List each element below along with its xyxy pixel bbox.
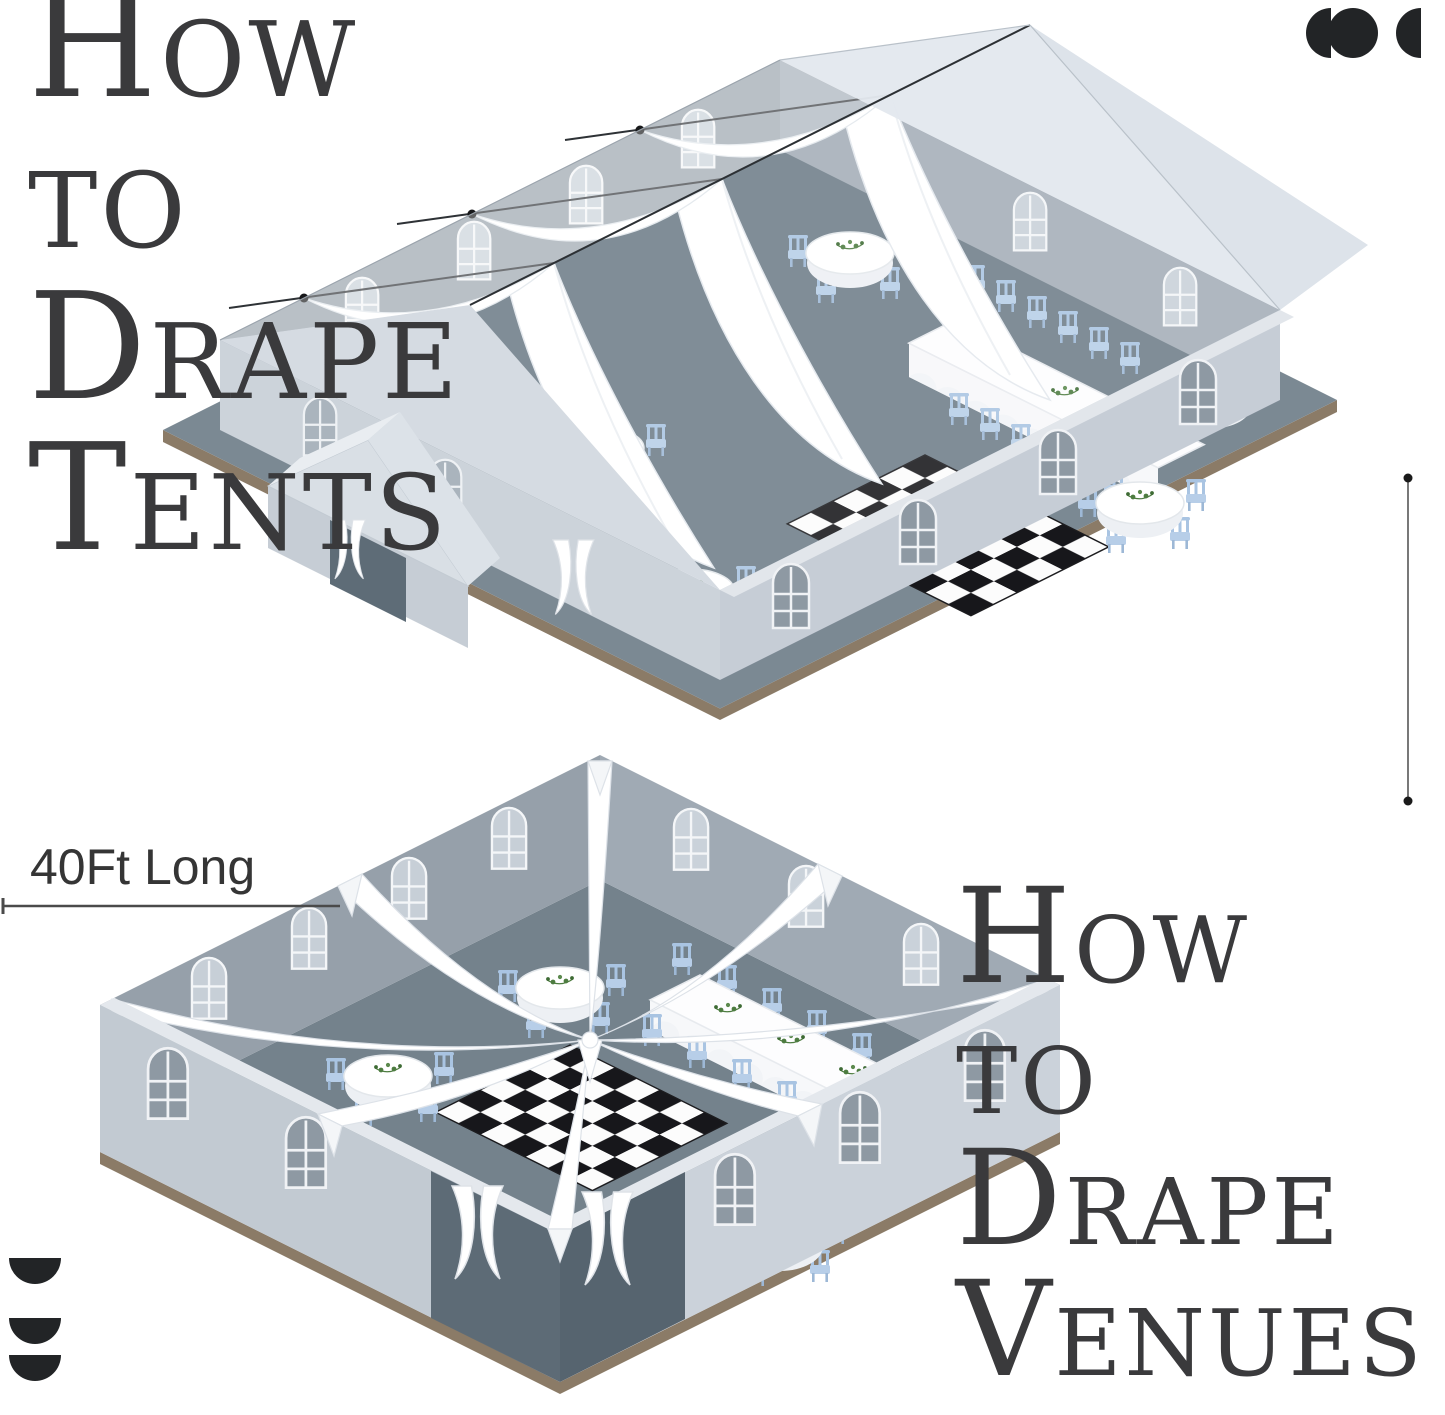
title-line: to xyxy=(28,121,461,272)
title-line: How xyxy=(28,0,461,121)
title-line: Venues xyxy=(956,1265,1425,1396)
title-drape-venues: How to Drape Venues xyxy=(956,872,1425,1396)
height-measure-line xyxy=(1404,474,1413,806)
title-line: Drape xyxy=(956,1134,1425,1265)
title-drape-tents: How to Drape Tents xyxy=(28,0,461,574)
title-line: to xyxy=(956,1003,1425,1134)
title-line: How xyxy=(956,872,1425,1003)
page-canvas: How to Drape Tents How to Drape Venues 4… xyxy=(0,0,1445,1415)
logo-semicircle-circle-semicircle-icon xyxy=(1287,4,1437,70)
logo-three-stacked-semicircles-icon xyxy=(4,1250,84,1410)
title-line: Tents xyxy=(28,423,461,574)
drape-length-label: 40Ft Long xyxy=(30,838,255,896)
title-line: Drape xyxy=(28,272,461,423)
